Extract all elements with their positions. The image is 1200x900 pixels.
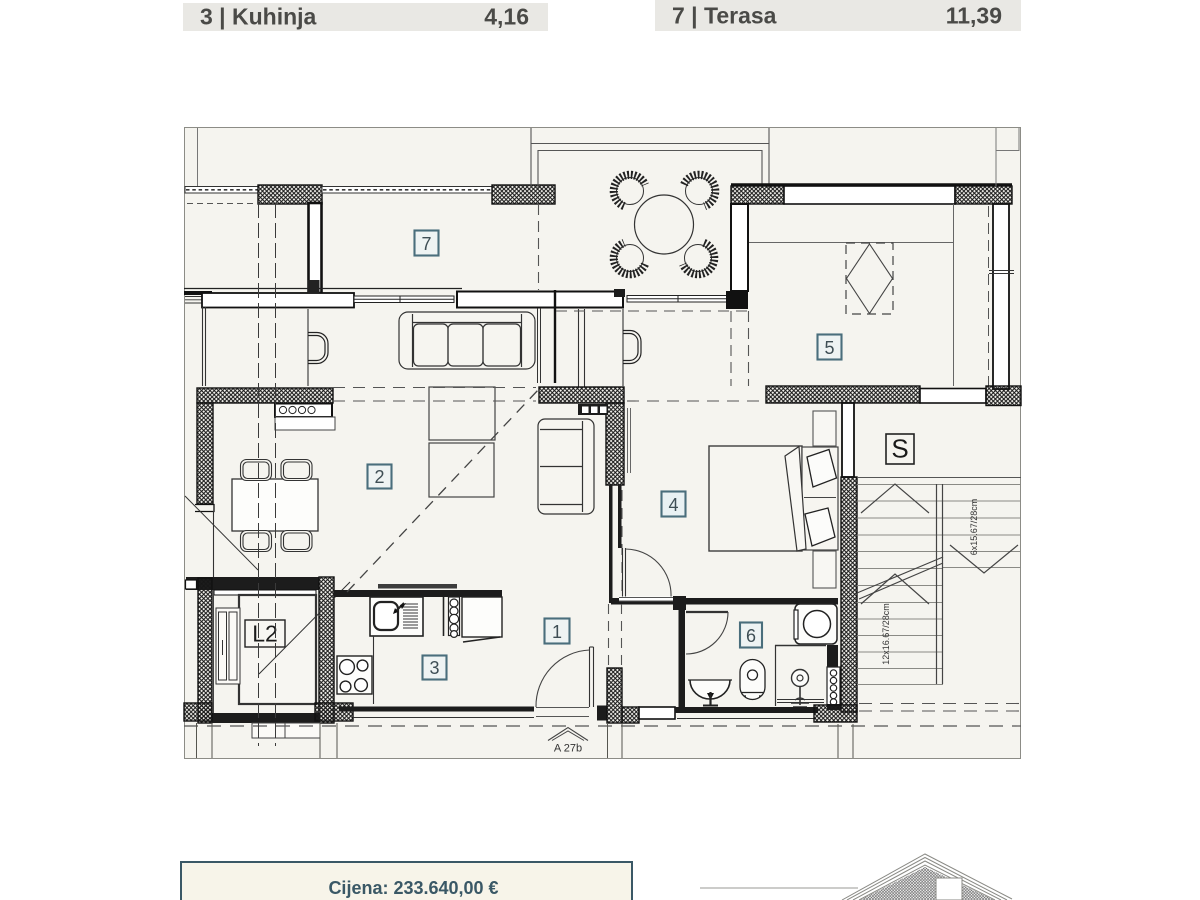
svg-text:5: 5 <box>824 338 834 358</box>
svg-text:6x15.67/28cm: 6x15.67/28cm <box>969 499 979 556</box>
svg-text:4: 4 <box>668 495 678 515</box>
svg-text:12x16.67/28cm: 12x16.67/28cm <box>881 603 891 665</box>
svg-text:2: 2 <box>374 467 384 487</box>
svg-text:6: 6 <box>746 626 756 646</box>
svg-text:A 27b: A 27b <box>554 743 582 755</box>
svg-text:1: 1 <box>552 622 562 642</box>
svg-text:L2: L2 <box>252 621 278 647</box>
svg-text:S: S <box>891 434 908 464</box>
svg-text:3: 3 <box>429 658 439 678</box>
svg-text:7: 7 <box>421 234 431 254</box>
